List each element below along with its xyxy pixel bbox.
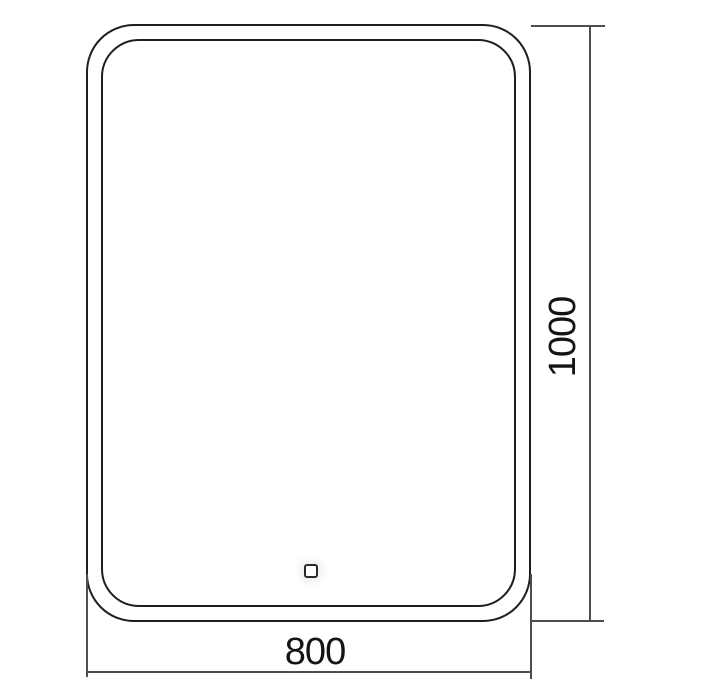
height-dimension-line bbox=[589, 25, 591, 622]
height-dimension-extension-line-bottom bbox=[531, 620, 604, 622]
height-dimension-label: 1000 bbox=[544, 297, 582, 378]
width-dimension-extension-line-left bbox=[86, 574, 88, 677]
width-dimension-label: 800 bbox=[285, 633, 345, 671]
height-dimension-extension-line-top bbox=[531, 25, 605, 27]
technical-drawing-canvas: 1000 800 bbox=[0, 0, 709, 686]
touch-sensor-icon bbox=[304, 564, 318, 578]
width-dimension-extension-line-right bbox=[530, 574, 532, 679]
mirror-inner-frame bbox=[101, 39, 516, 607]
